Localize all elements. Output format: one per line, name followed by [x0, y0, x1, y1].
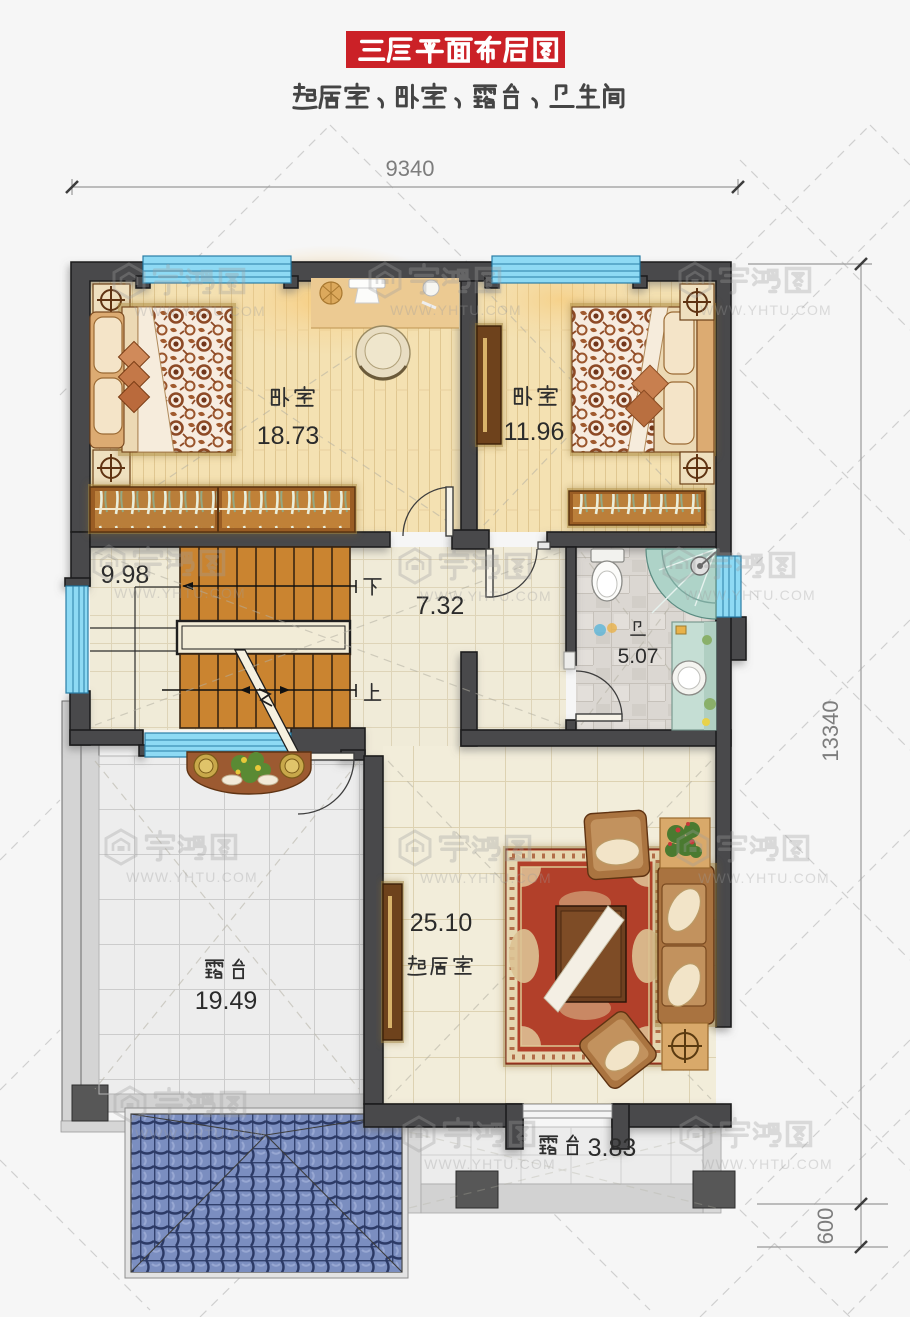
- svg-text:19.49: 19.49: [195, 987, 258, 1015]
- svg-text:11.96: 11.96: [504, 418, 565, 446]
- svg-text:600: 600: [813, 1208, 838, 1245]
- svg-text:25.10: 25.10: [410, 909, 473, 937]
- svg-text:9340: 9340: [386, 156, 435, 181]
- svg-text:18.73: 18.73: [257, 422, 320, 450]
- svg-text:13340: 13340: [818, 700, 843, 761]
- svg-text:3.83: 3.83: [588, 1134, 637, 1162]
- svg-text:5.07: 5.07: [618, 645, 659, 668]
